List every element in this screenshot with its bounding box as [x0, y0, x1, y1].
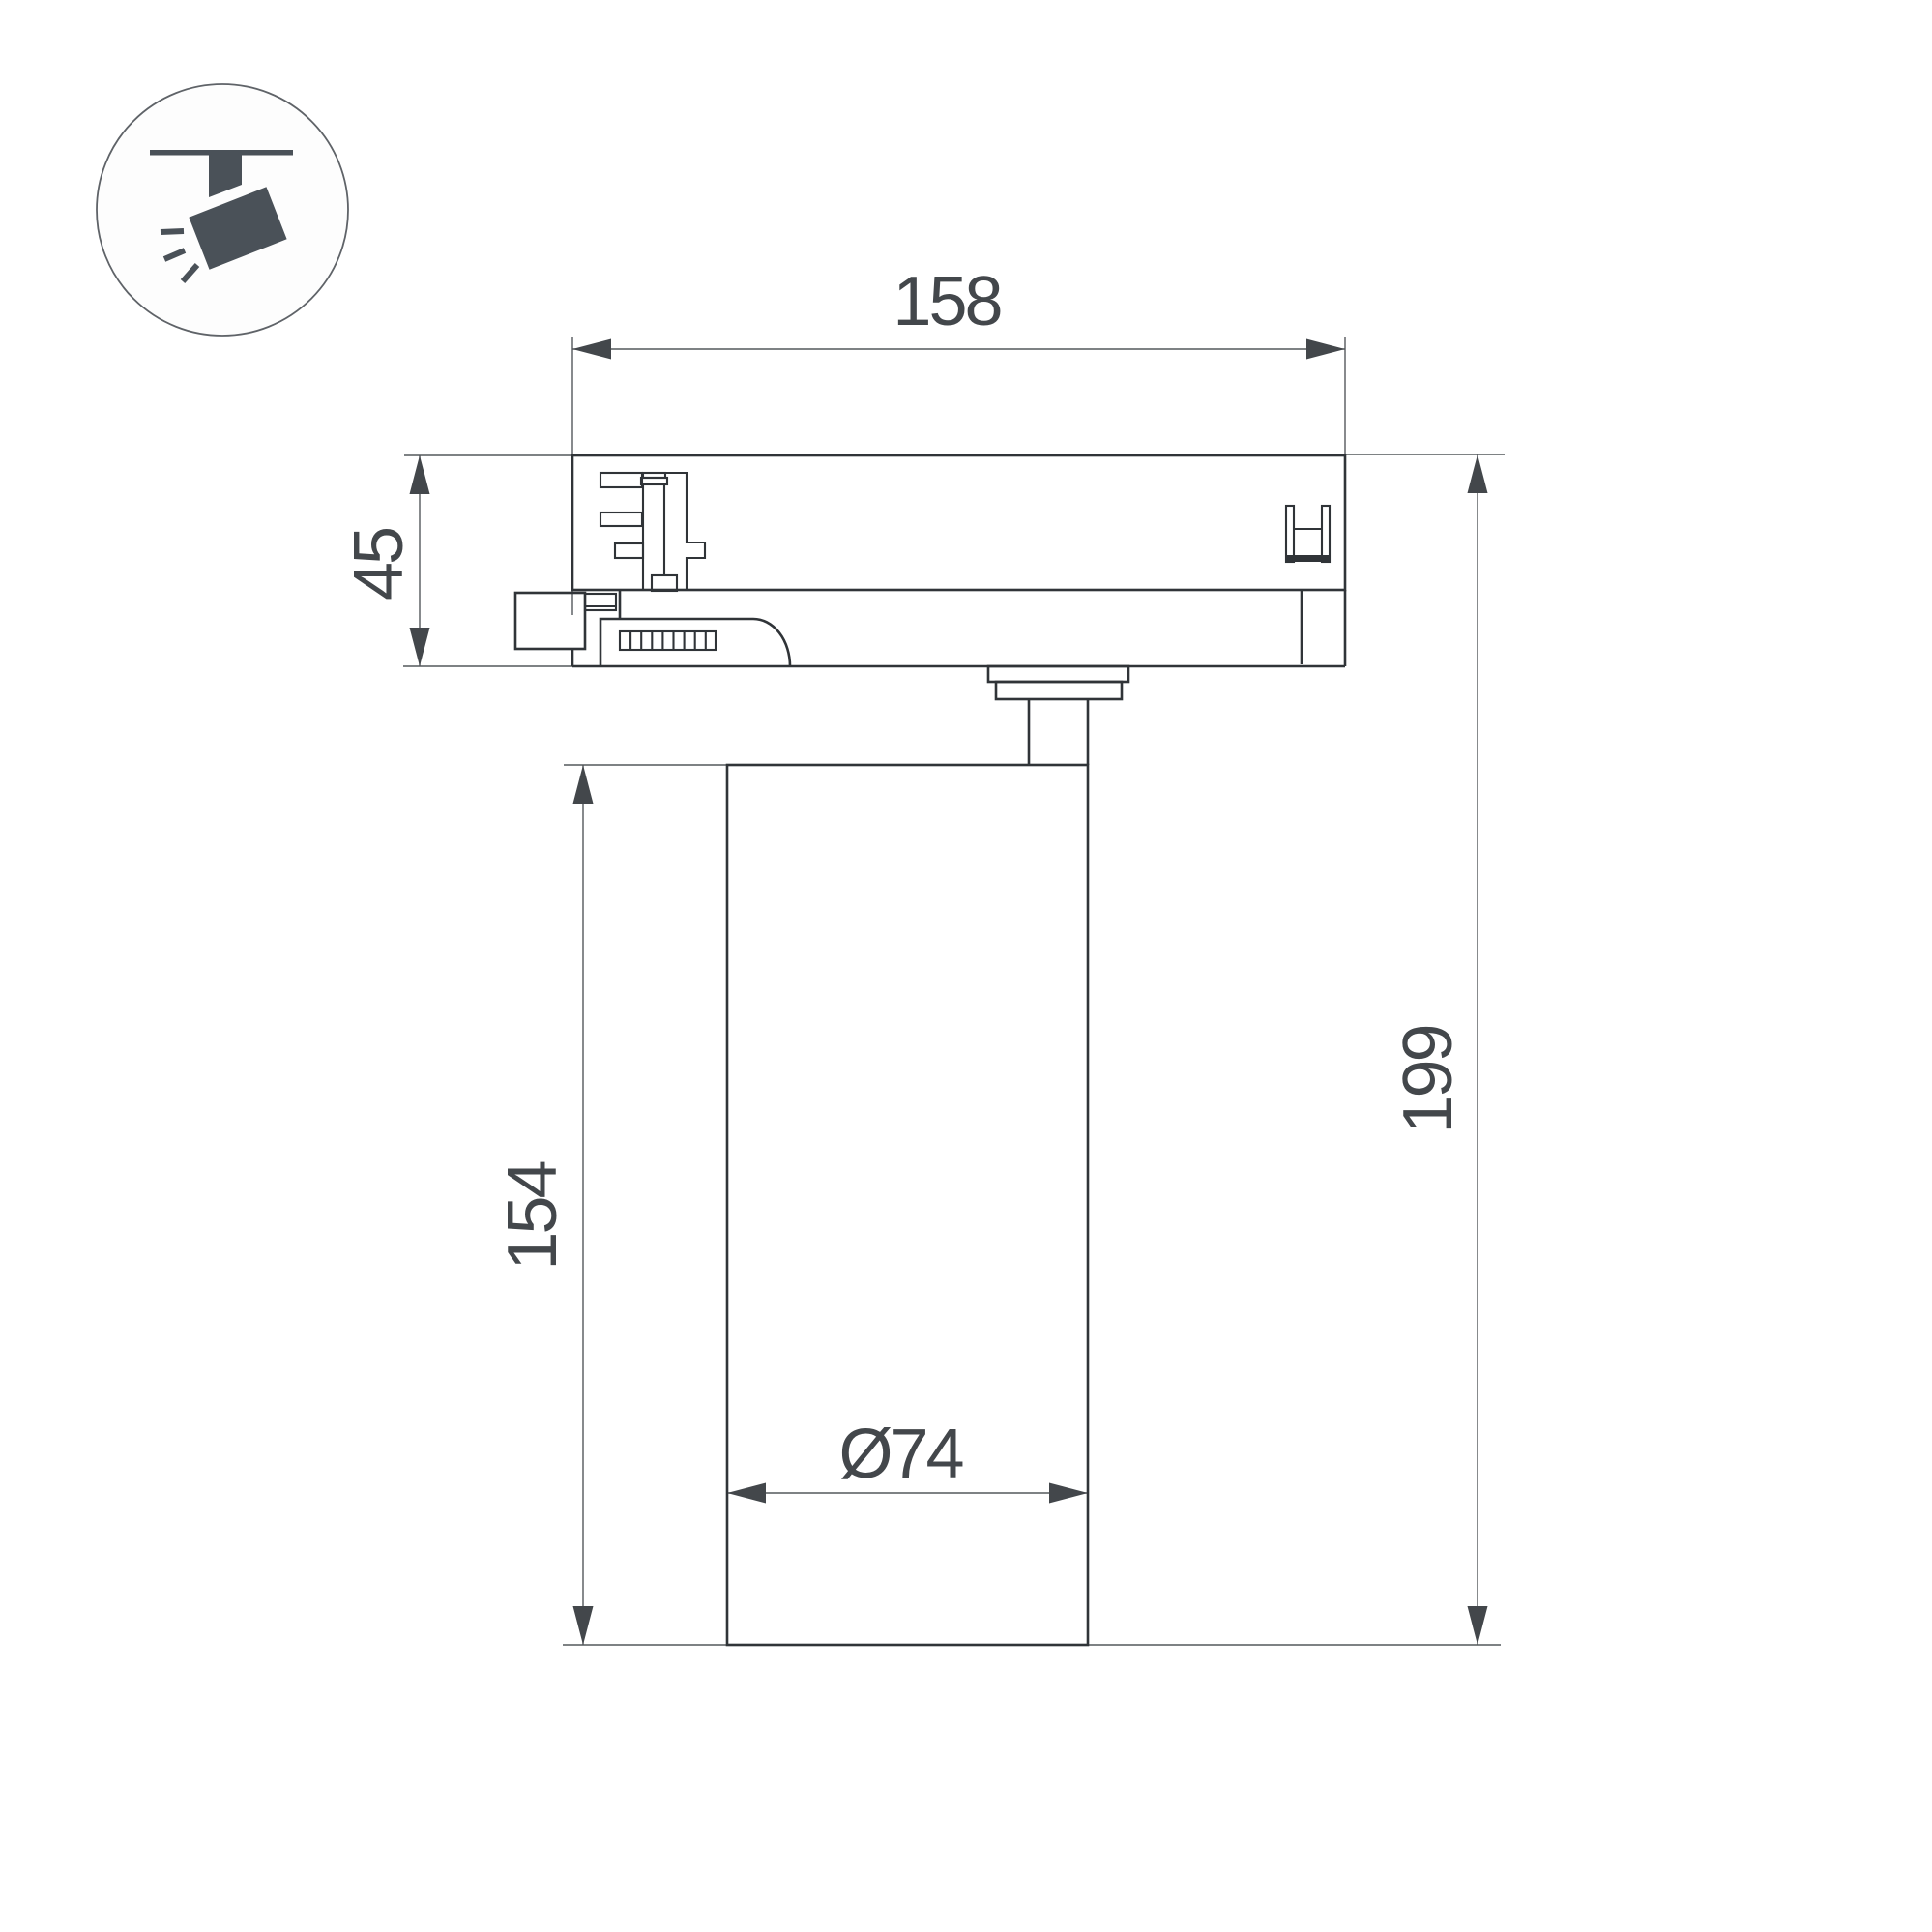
svg-text:158: 158: [893, 263, 1000, 340]
svg-text:199: 199: [1390, 1026, 1467, 1133]
svg-text:45: 45: [340, 528, 418, 600]
svg-text:Ø74: Ø74: [838, 1416, 962, 1493]
svg-text:154: 154: [494, 1161, 571, 1270]
